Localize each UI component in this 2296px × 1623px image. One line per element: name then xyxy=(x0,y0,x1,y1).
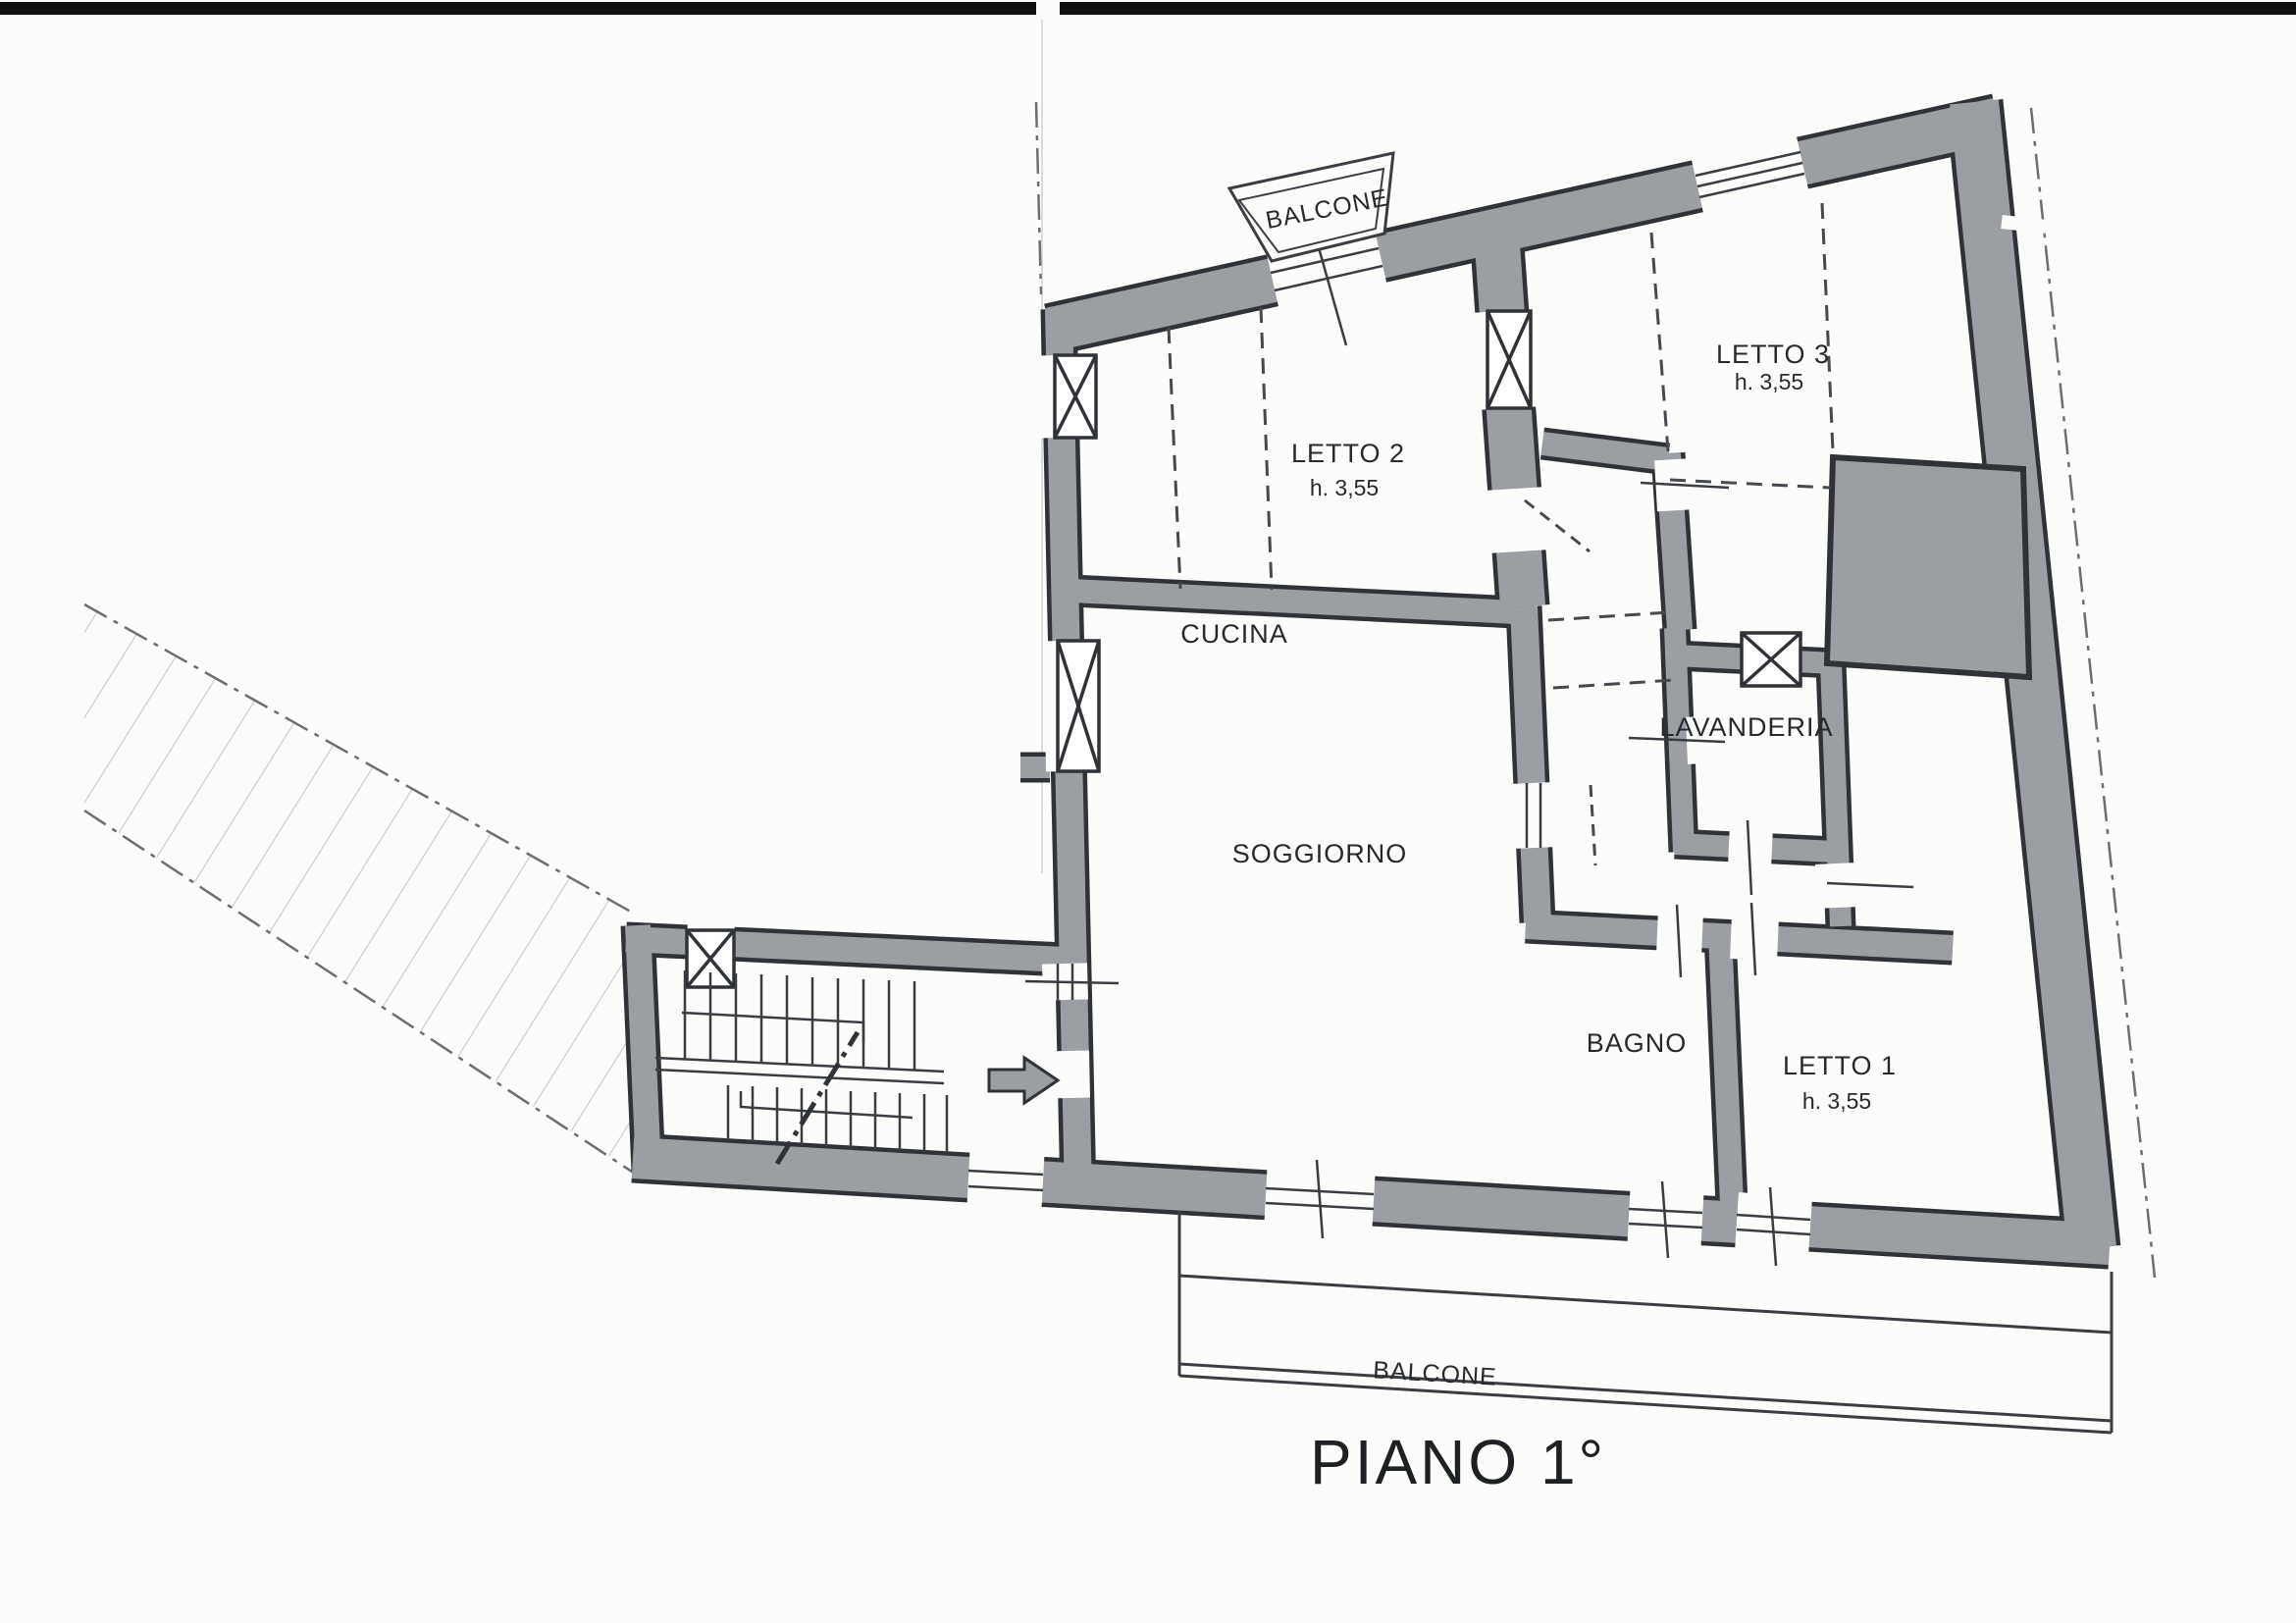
opening-storage-door xyxy=(1835,864,1837,908)
property-line-top-left xyxy=(1036,102,1041,294)
room-label-bagno: BAGNO xyxy=(1587,1028,1688,1058)
floor-plan-drawing: LETTO 2 h. 3,55 LETTO 3 h. 3,55 CUCINA S… xyxy=(0,0,2296,1623)
stair-rail-line xyxy=(655,1058,944,1072)
stair-rail-line xyxy=(655,1070,944,1083)
window-x-icon xyxy=(1058,641,1099,771)
page-title: PIANO 1° xyxy=(1310,1427,1606,1497)
opening-bagno-door xyxy=(1657,932,1702,934)
room-label-soggiorno: SOGGIORNO xyxy=(1232,839,1408,868)
room-label-letto2: LETTO 2 xyxy=(1291,439,1405,468)
window-x-icon xyxy=(1742,633,1800,686)
balcony-label-bottom: BALCONE xyxy=(1373,1356,1498,1390)
floor-plan-page: LETTO 2 h. 3,55 LETTO 3 h. 3,55 CUCINA S… xyxy=(0,0,2296,1623)
height-note-letto1: h. 3,55 xyxy=(1802,1088,1871,1114)
room-label-letto1: LETTO 1 xyxy=(1783,1051,1897,1080)
opening-letto2-door xyxy=(1515,489,1519,551)
adjacent-roof-hatch xyxy=(84,604,636,1174)
staircase xyxy=(655,970,947,1164)
x-window-symbols xyxy=(687,311,1800,987)
room-label-letto3: LETTO 3 xyxy=(1716,340,1830,369)
height-note-letto2: h. 3,55 xyxy=(1310,475,1379,500)
opening-entry-door xyxy=(1067,1051,1068,1098)
right-wall-notch xyxy=(2002,222,2046,227)
room-label-lavanderia: LAVANDERIA xyxy=(1659,712,1833,742)
height-note-letto3: h. 3,55 xyxy=(1735,369,1803,394)
scan-edge-bar xyxy=(0,0,2296,17)
opening-corridor-door xyxy=(1532,783,1535,848)
window-x-icon xyxy=(1055,355,1096,438)
room-label-cucina: CUCINA xyxy=(1180,619,1288,649)
wall-mass-block xyxy=(1827,457,2029,677)
window-x-icon xyxy=(1487,311,1531,408)
